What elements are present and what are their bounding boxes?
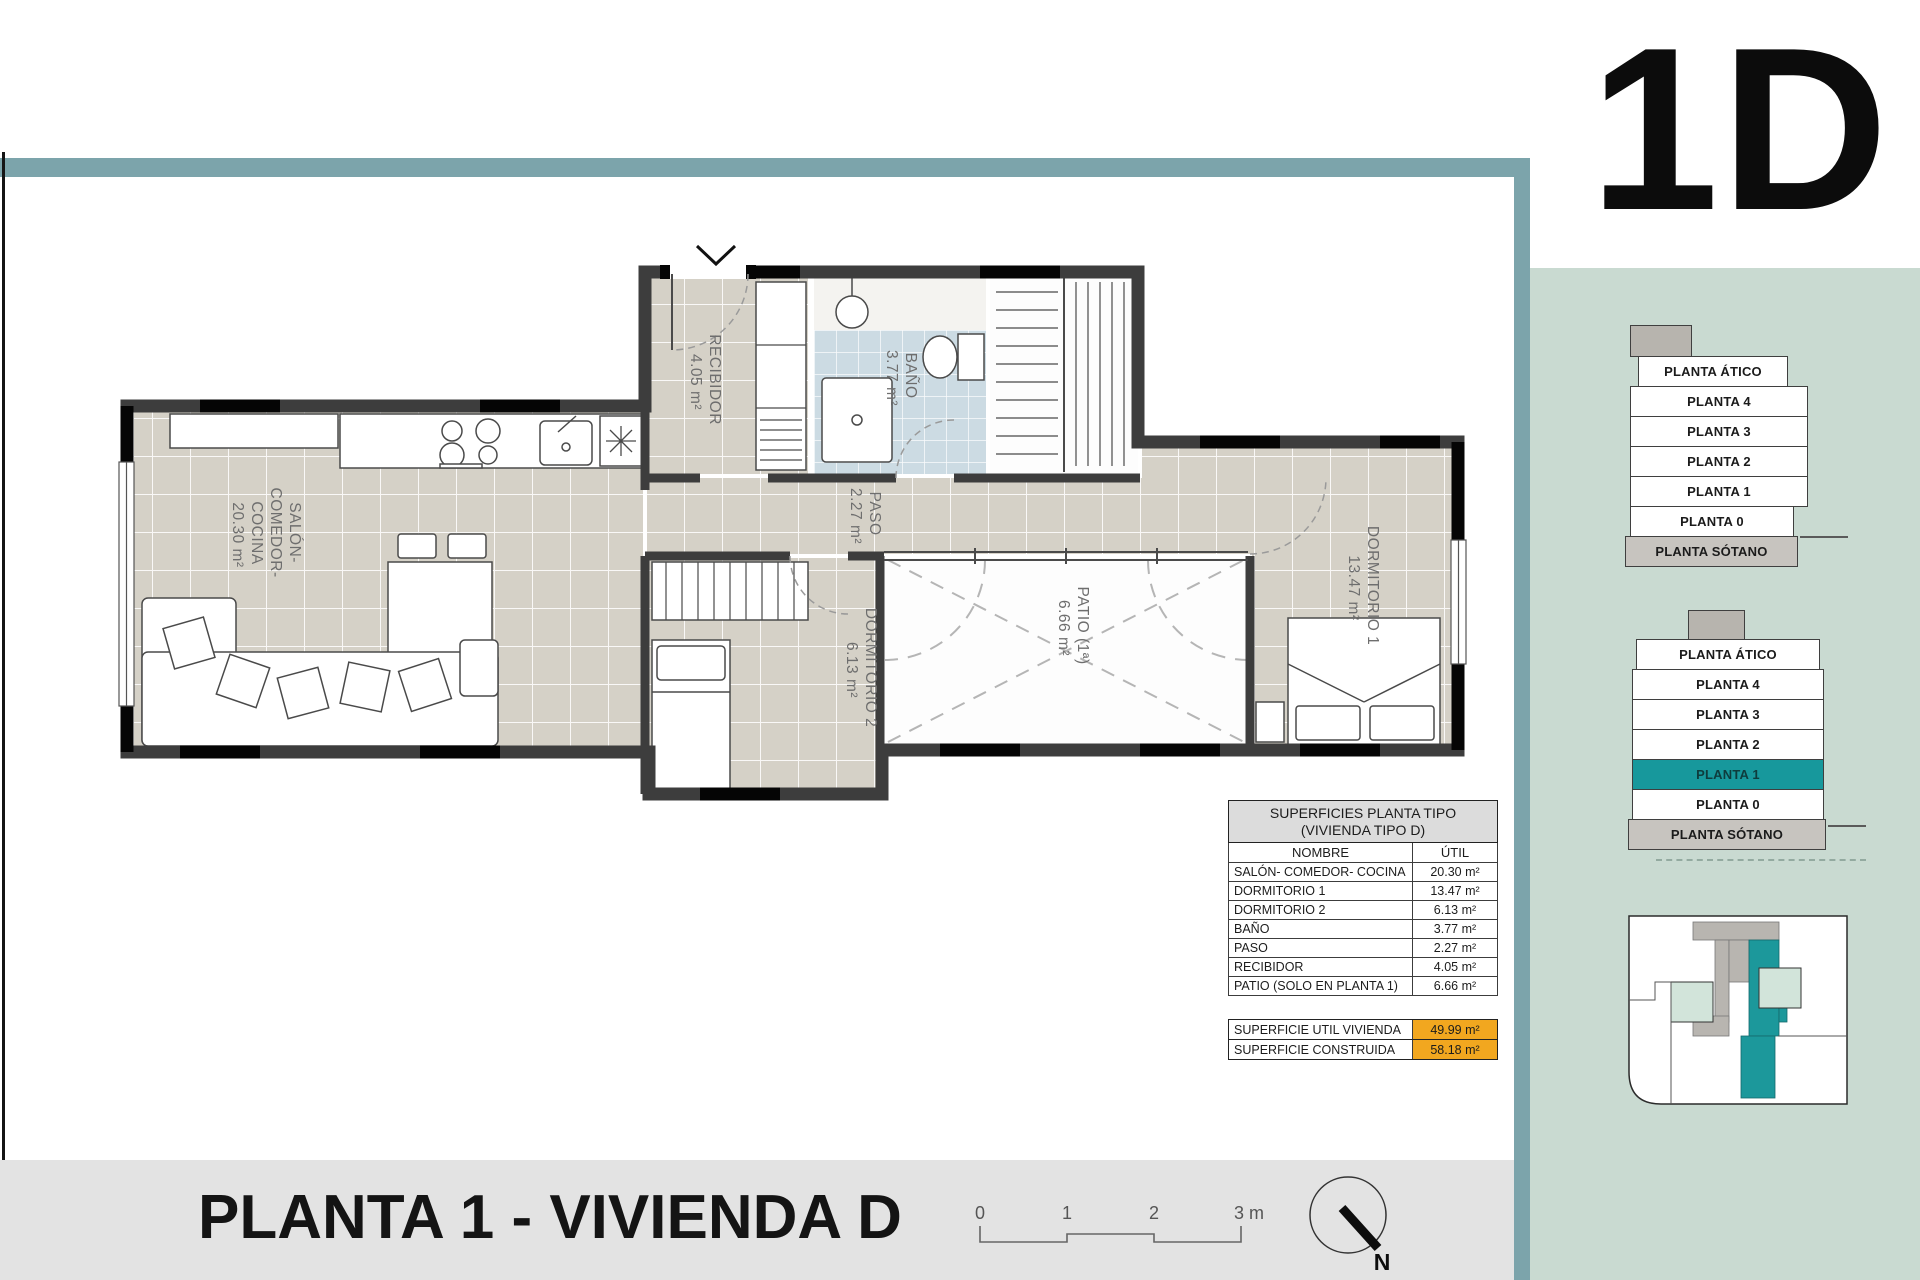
north-arrow-icon: N (1290, 1170, 1420, 1280)
scale-tick-2: 2 (1149, 1203, 1159, 1223)
table-row: PATIO (SOLO EN PLANTA 1) 6.66 m² (1228, 977, 1498, 996)
top-teal-band (0, 158, 1530, 177)
entrance-arrow-icon (697, 246, 735, 264)
table-row: RECIBIDOR 4.05 m² (1228, 958, 1498, 977)
stack-floor-1-highlighted: PLANTA 1 (1632, 759, 1824, 790)
surfaces-table: SUPERFICIES PLANTA TIPO (VIVIENDA TIPO D… (1228, 800, 1498, 1060)
table-spacer (1228, 996, 1498, 1020)
stack-floor-0: PLANTA 0 (1632, 789, 1824, 820)
plan-sheet: 1D (0, 0, 1920, 1280)
stack-floor-0: PLANTA 0 (1630, 506, 1794, 537)
surfaces-table-title: SUPERFICIES PLANTA TIPO (VIVIENDA TIPO D… (1228, 800, 1498, 843)
stack-floor-4: PLANTA 4 (1630, 386, 1808, 417)
stack-floor-atico: PLANTA ÁTICO (1636, 639, 1820, 670)
stack-floor-1: PLANTA 1 (1630, 476, 1808, 507)
bed-single (652, 640, 730, 790)
building-stack-plain: PLANTA ÁTICO PLANTA 4 PLANTA 3 PLANTA 2 … (1630, 325, 1808, 567)
surfaces-table-header-row: NOMBRE ÚTIL (1228, 843, 1498, 863)
bedroom2-wardrobe (652, 562, 808, 620)
shower-icon (822, 378, 892, 462)
ground-line (1800, 536, 1848, 538)
fridge-icon (600, 416, 643, 466)
north-label: N (1374, 1249, 1391, 1275)
stack-floor-sotano: PLANTA SÓTANO (1625, 536, 1798, 567)
stack-chimney (1688, 610, 1745, 640)
stack-floor-2: PLANTA 2 (1630, 446, 1808, 477)
stack-floor-atico: PLANTA ÁTICO (1638, 356, 1788, 387)
total-util-value: 49.99 m² (1412, 1020, 1497, 1039)
sideboard (170, 414, 338, 448)
scale-tick-0: 0 (975, 1203, 985, 1223)
left-frame-line (2, 152, 5, 1160)
sink-icon (540, 416, 592, 465)
stack-floor-4: PLANTA 4 (1632, 669, 1824, 700)
table-row: DORMITORIO 2 6.13 m² (1228, 901, 1498, 920)
table-row: PASO 2.27 m² (1228, 939, 1498, 958)
stack-floor-2: PLANTA 2 (1632, 729, 1824, 760)
total-built-value: 58.18 m² (1412, 1040, 1497, 1059)
building-stack-highlighted: PLANTA ÁTICO PLANTA 4 PLANTA 3 PLANTA 2 … (1632, 610, 1826, 850)
col-header-nombre: NOMBRE (1229, 843, 1412, 862)
table-row: DORMITORIO 1 13.47 m² (1228, 882, 1498, 901)
col-header-util: ÚTIL (1412, 843, 1497, 862)
total-util-row: SUPERFICIE UTIL VIVIENDA 49.99 m² (1228, 1019, 1498, 1040)
site-plan (1605, 908, 1870, 1123)
stack-floor-3: PLANTA 3 (1632, 699, 1824, 730)
scale-tick-1: 1 (1062, 1203, 1072, 1223)
right-teal-band (1514, 158, 1530, 1280)
scale-tick-3: 3 m (1234, 1203, 1264, 1223)
terrain-dashed-line (1656, 859, 1866, 861)
table-row: BAÑO 3.77 m² (1228, 920, 1498, 939)
stack-floor-3: PLANTA 3 (1630, 416, 1808, 447)
stack-floor-sotano: PLANTA SÓTANO (1628, 819, 1826, 850)
hall-wardrobe (756, 282, 806, 470)
stack-chimney (1630, 325, 1692, 357)
table-row: SALÓN- COMEDOR- COCINA 20.30 m² (1228, 863, 1498, 882)
scale-bar: 0 1 2 3 m (968, 1200, 1268, 1256)
floor-plan: SALÓN- COMEDOR- COCINA 20.30 m² RECIBIDO… (90, 240, 1500, 820)
total-built-row: SUPERFICIE CONSTRUIDA 58.18 m² (1228, 1039, 1498, 1060)
page-title: PLANTA 1 - VIVIENDA D (198, 1182, 902, 1253)
ground-line (1828, 825, 1866, 827)
unit-type-label: 1D (1575, 22, 1905, 237)
